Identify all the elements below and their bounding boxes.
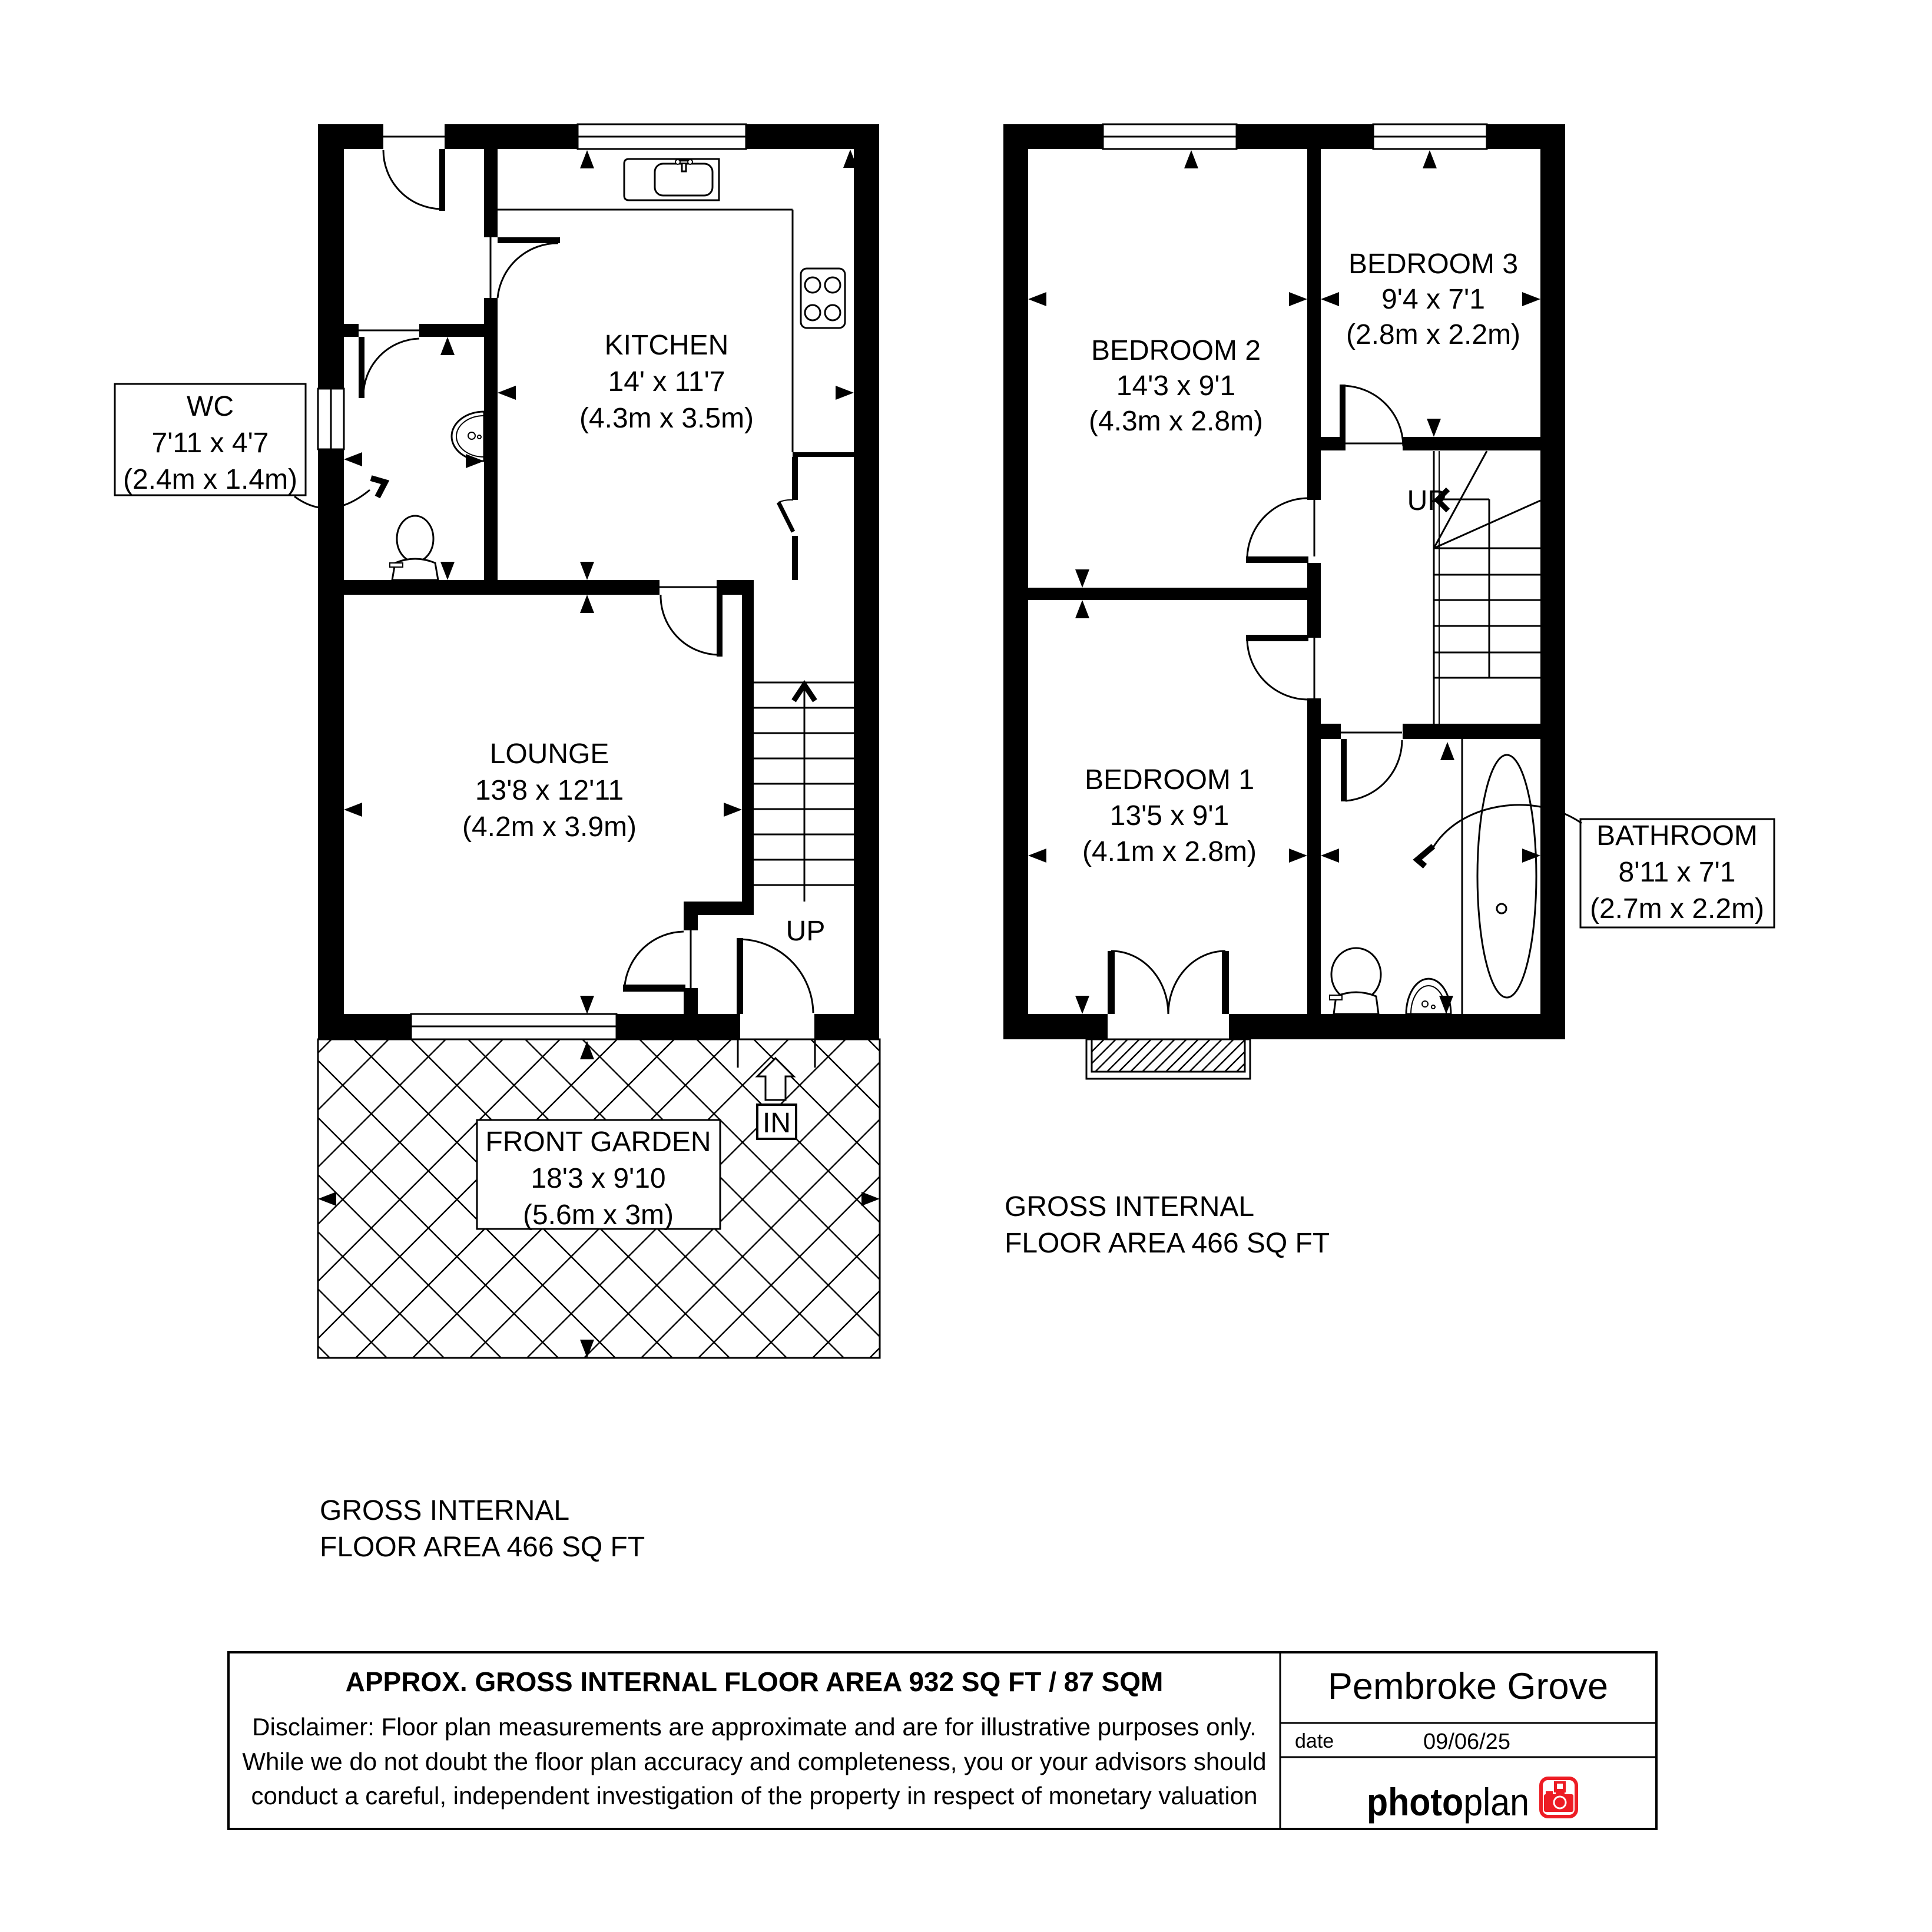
svg-text:FLOOR AREA 466 SQ FT: FLOOR AREA 466 SQ FT <box>1005 1228 1330 1259</box>
svg-text:BEDROOM 3: BEDROOM 3 <box>1348 248 1518 280</box>
svg-text:Disclaimer: Floor plan measure: Disclaimer: Floor plan measurements are … <box>252 1713 1257 1741</box>
svg-text:(4.1m x 2.8m): (4.1m x 2.8m) <box>1082 836 1257 867</box>
svg-text:(2.4m x 1.4m): (2.4m x 1.4m) <box>123 464 297 495</box>
svg-text:IN: IN <box>763 1108 791 1139</box>
svg-text:APPROX. GROSS INTERNAL FLOOR A: APPROX. GROSS INTERNAL FLOOR AREA 932 SQ… <box>346 1666 1164 1697</box>
svg-text:While we do not doubt the floo: While we do not doubt the floor plan acc… <box>242 1748 1266 1775</box>
svg-text:GROSS INTERNAL: GROSS INTERNAL <box>1005 1191 1254 1222</box>
svg-text:WC: WC <box>187 391 234 422</box>
svg-text:UP: UP <box>786 916 826 947</box>
svg-text:(4.3m x 2.8m): (4.3m x 2.8m) <box>1089 406 1263 437</box>
svg-text:Pembroke Grove: Pembroke Grove <box>1328 1666 1608 1707</box>
svg-text:date: date <box>1295 1730 1334 1752</box>
svg-text:(4.2m x 3.9m): (4.2m x 3.9m) <box>462 811 637 843</box>
svg-text:BEDROOM 1: BEDROOM 1 <box>1085 764 1254 796</box>
svg-text:8'11 x 7'1: 8'11 x 7'1 <box>1619 857 1736 888</box>
svg-text:FLOOR AREA 466 SQ FT: FLOOR AREA 466 SQ FT <box>320 1532 645 1563</box>
svg-text:photoplan: photoplan <box>1367 1780 1529 1824</box>
svg-text:(2.7m x 2.2m): (2.7m x 2.2m) <box>1590 893 1764 924</box>
svg-text:conduct a careful, independent: conduct a careful, independent investiga… <box>251 1782 1257 1810</box>
svg-text:BEDROOM 2: BEDROOM 2 <box>1091 335 1261 366</box>
svg-text:9'4 x 7'1: 9'4 x 7'1 <box>1381 284 1485 315</box>
svg-text:FRONT GARDEN: FRONT GARDEN <box>485 1126 711 1158</box>
svg-text:7'11 x 4'7: 7'11 x 4'7 <box>152 428 269 459</box>
svg-text:BATHROOM: BATHROOM <box>1596 820 1758 851</box>
svg-text:LOUNGE: LOUNGE <box>490 738 609 770</box>
svg-text:13'5 x 9'1: 13'5 x 9'1 <box>1110 800 1229 831</box>
svg-text:14' x 11'7: 14' x 11'7 <box>608 366 725 397</box>
svg-text:(5.6m x 3m): (5.6m x 3m) <box>523 1199 674 1231</box>
svg-text:(2.8m x 2.2m): (2.8m x 2.2m) <box>1346 319 1520 350</box>
svg-text:GROSS INTERNAL: GROSS INTERNAL <box>320 1495 569 1526</box>
svg-text:(4.3m x 3.5m): (4.3m x 3.5m) <box>579 403 754 434</box>
svg-text:KITCHEN: KITCHEN <box>605 330 729 361</box>
svg-text:09/06/25: 09/06/25 <box>1423 1729 1510 1754</box>
svg-text:18'3 x 9'10: 18'3 x 9'10 <box>531 1163 665 1194</box>
svg-text:13'8 x 12'11: 13'8 x 12'11 <box>475 775 624 806</box>
svg-text:14'3 x 9'1: 14'3 x 9'1 <box>1116 370 1235 402</box>
